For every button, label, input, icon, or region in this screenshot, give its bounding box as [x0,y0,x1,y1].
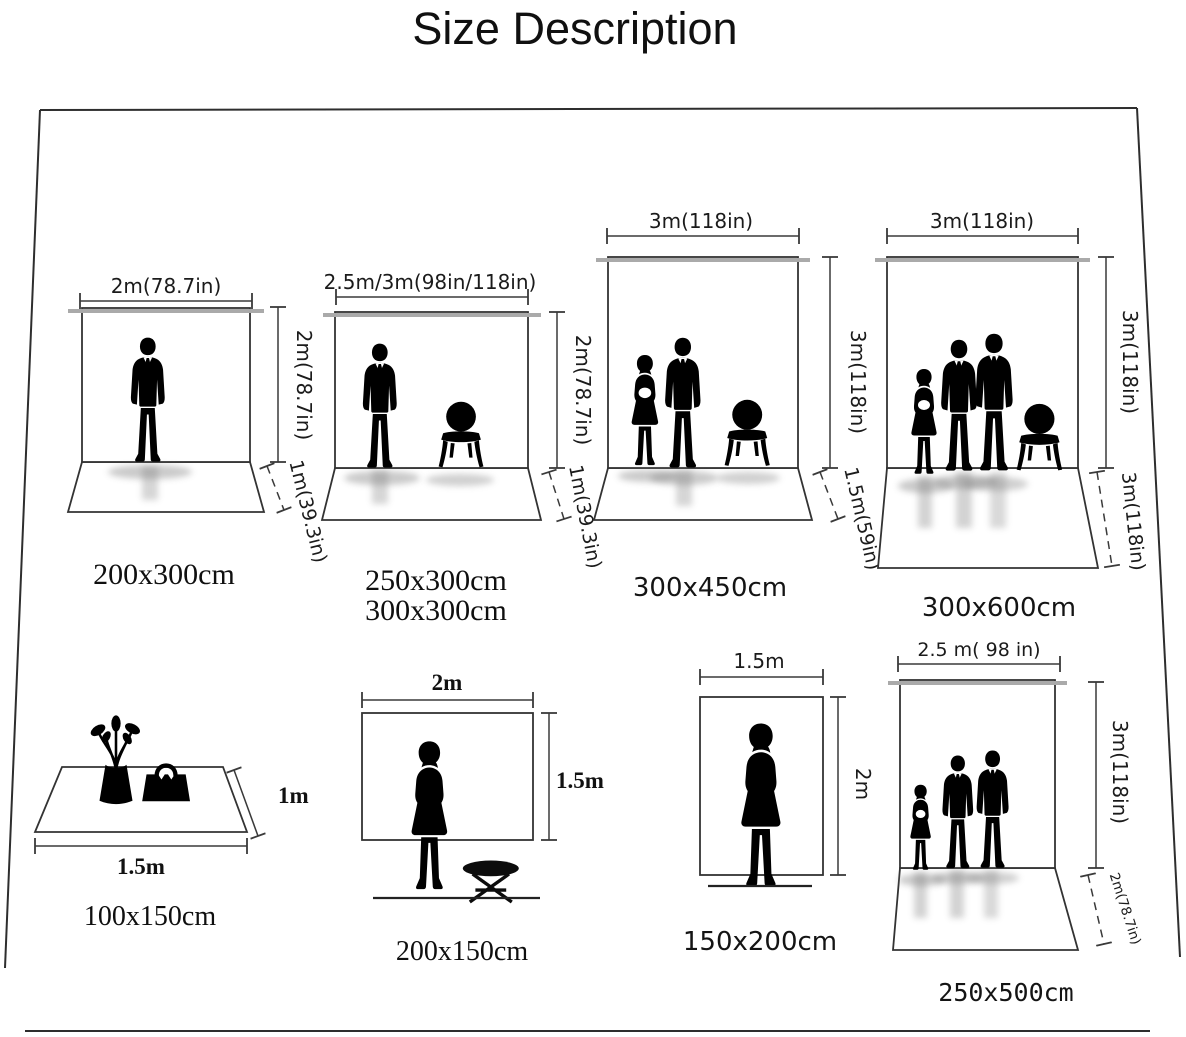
floor-dimension-line [1088,875,1104,944]
backdrop-outline [900,680,1055,868]
panel-200x150cm: 2m 1.5m 200x150cm [362,670,604,967]
floor-dimension-label: 3m(118in) [1117,471,1149,572]
backdrop-outline [82,308,250,462]
height-dimension-label: 2m(78.7in) [292,330,316,441]
panel-250x500cm: 2.5 m( 98 in) 3m(118in) 2m(78.7in) 250x5… [888,639,1144,1007]
width-dimension-label: 1.5m [117,854,165,879]
width-dimension-label: 2.5 m( 98 in) [917,639,1040,661]
panel-100x150cm: 1m 1.5m 100x150cm [35,715,309,932]
size-label: 250x300cm [365,564,507,597]
floor-dimension-line [549,472,564,519]
panel-300x600cm: 3m(118in) 3m(118in) 3m(118in) 300x600cm [875,209,1149,623]
floor-dimension-label: 1.5m(59in) [839,465,884,572]
width-dimension-label: 3m(118in) [649,209,753,233]
size-diagram: Size Description 2m(78.7in) 2m(78.7in) 1… [0,0,1186,1037]
size-label: 300x300cm [365,594,507,627]
depth-dimension-label: 1m [278,783,309,808]
floor-dimension-line [820,472,838,519]
floor-dimension-label: 2m(78.7in) [1106,871,1144,947]
width-dimension-label: 1.5m [733,649,784,673]
panel-250x300cm-300x300cm: 2.5m/3m(98in/118in) 2m(78.7in) 1m(39.3in… [322,270,606,627]
floor-dimension-line [267,466,284,510]
size-label: 150x200cm [683,927,837,957]
height-dimension-label: 3m(118in) [846,330,870,434]
size-label: 100x150cm [84,901,216,932]
width-dimension-label: 2.5m/3m(98in/118in) [324,270,537,294]
size-description-infographic: Size Description 2m(78.7in) 2m(78.7in) 1… [0,0,1186,1037]
height-dimension-label: 1.5m [556,768,604,793]
panel-150x200cm: 1.5m 2m 150x200cm [683,649,875,957]
height-dimension-label: 3m(118in) [1118,310,1142,414]
panel-200x300cm: 2m(78.7in) 2m(78.7in) 1m(39.3in) 200x300… [68,274,331,591]
size-label: 300x450cm [633,573,787,603]
size-label: 200x150cm [396,936,528,967]
height-dimension-label: 2m(78.7in) [571,335,595,446]
height-dimension-label: 2m [851,768,875,800]
size-label: 300x600cm [922,593,1076,623]
height-dimension-label: 3m(118in) [1108,720,1132,824]
size-label: 250x500cm [938,978,1073,1007]
page-title: Size Description [412,3,737,54]
stool-silhouette [463,861,519,902]
width-dimension-label: 3m(118in) [930,209,1034,233]
panel-300x450cm: 3m(118in) 3m(118in) 1.5m(59in) 300x450cm [594,209,884,603]
backdrop-outline [362,713,533,840]
width-dimension-label: 2m(78.7in) [111,274,222,298]
backdrop-outline [608,257,798,468]
width-dimension-label: 2m [432,670,463,695]
size-label: 200x300cm [93,558,235,591]
floor-dimension-line [1097,472,1112,566]
mat-outline [35,767,247,832]
